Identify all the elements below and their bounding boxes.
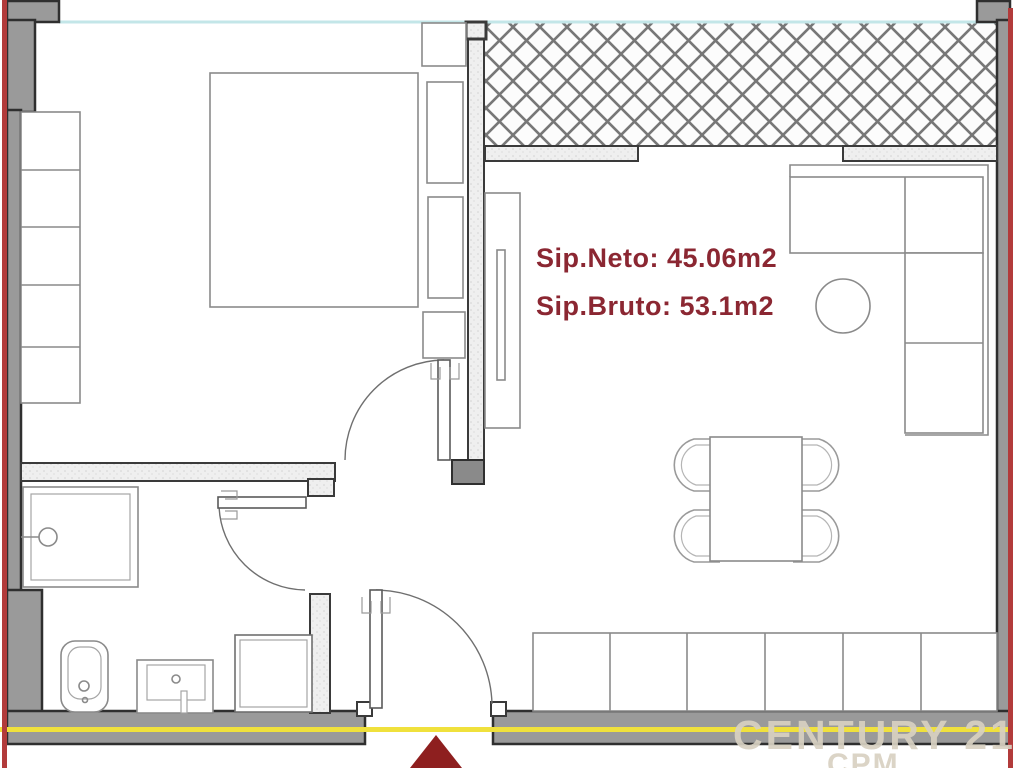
- wall-bath-door-jamb: [308, 479, 334, 496]
- dining-table: [710, 437, 802, 561]
- wall-left-lower: [7, 590, 42, 715]
- bed: [210, 73, 418, 307]
- cpm-watermark: CPM: [827, 748, 900, 768]
- wall-left-main: [7, 110, 21, 592]
- wall-divider-top-cap: [466, 22, 486, 39]
- wall-bedroom-bottom: [21, 463, 335, 481]
- nightstand-top: [422, 23, 466, 66]
- bed-pillow-top: [427, 82, 463, 183]
- boundary-red-line-left: [2, 0, 7, 768]
- toilet: [61, 641, 108, 712]
- shower-tray: [21, 487, 138, 587]
- wall-divider-base: [452, 460, 484, 484]
- floor-plan-page: Sip.Neto: 45.06m2 Sip.Bruto: 53.1m2 CENT…: [0, 0, 1015, 768]
- wardrobe: [21, 112, 80, 403]
- tv-unit: [485, 193, 520, 428]
- tv-screen: [497, 250, 505, 380]
- gross-area-label: Sip.Bruto: 53.1m2: [536, 291, 774, 322]
- washbasin: [137, 660, 213, 713]
- floor-plan-drawing: [0, 0, 1015, 768]
- entrance-jamb-right: [491, 702, 506, 716]
- nightstand-bottom: [423, 312, 465, 358]
- wall-bathroom-vertical: [310, 594, 330, 713]
- washing-machine: [235, 635, 312, 712]
- kitchen-counter: [533, 633, 997, 711]
- wall-terrace-lintel-left: [485, 146, 638, 161]
- terrace-hatched-area: [485, 23, 997, 146]
- wall-bedroom-divider: [468, 23, 484, 462]
- wall-left-upper: [7, 20, 35, 112]
- bed-pillow-bottom: [428, 197, 463, 298]
- net-area-label: Sip.Neto: 45.06m2: [536, 243, 777, 274]
- entrance-door-leaf: [370, 590, 382, 708]
- boundary-red-line-right: [1008, 8, 1013, 768]
- wall-terrace-lintel-right: [843, 146, 997, 161]
